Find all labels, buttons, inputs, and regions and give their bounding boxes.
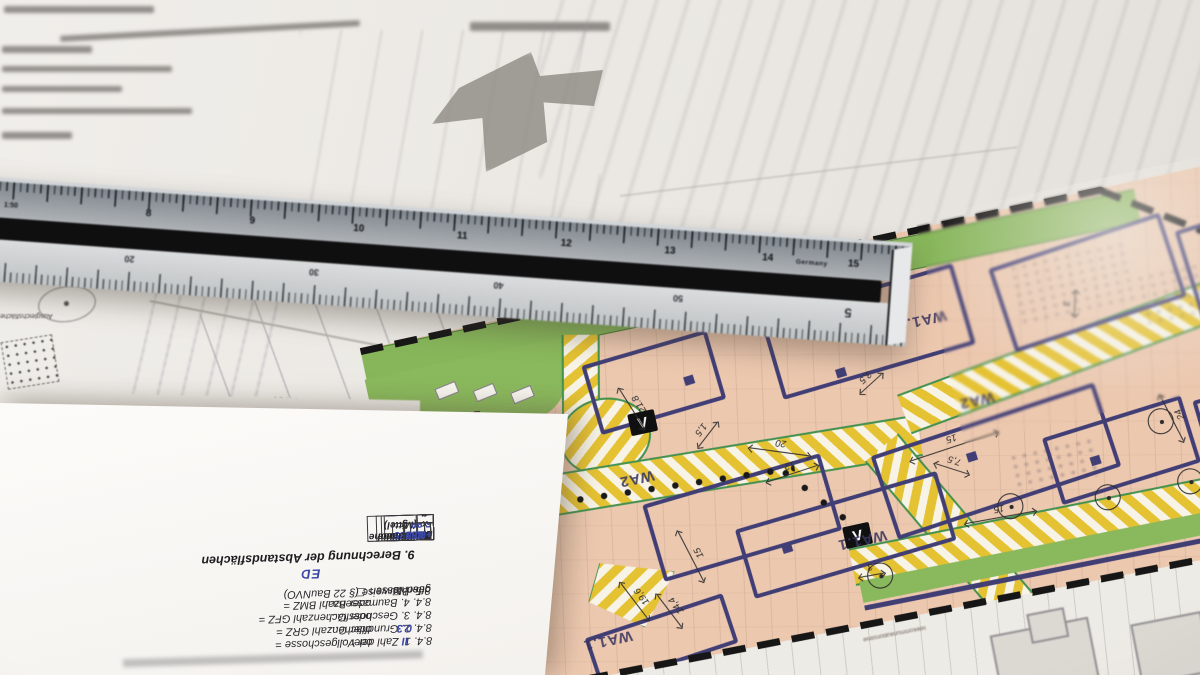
form-sheet-wrap: 8.4. 1. Zahl der Vollgeschosse =IIoder …… [0, 0, 1200, 675]
form-value: 0.3 [377, 621, 432, 635]
form-content: 8.4. 1. Zahl der Vollgeschosse =IIoder …… [0, 449, 573, 675]
cell [430, 522, 435, 540]
form-section-heading: 9. Berechnung der Abstandsflächen [201, 548, 415, 568]
handwritten-stamp: ED [300, 566, 320, 582]
photo-scene: Ausgleichsfläche ▲ ▲ ▲ ▲ ▲ ▲ ▲ ▲ ▲ ▲ Umg… [0, 0, 1200, 675]
form-alt-label: oder G… [327, 623, 372, 636]
form-value: II [377, 634, 432, 648]
form-alt-label: oder … [336, 636, 372, 649]
form-sheet: 8.4. 1. Zahl der Vollgeschosse =IIoder …… [0, 0, 1200, 675]
form-alt-label: oder G… [327, 610, 372, 623]
